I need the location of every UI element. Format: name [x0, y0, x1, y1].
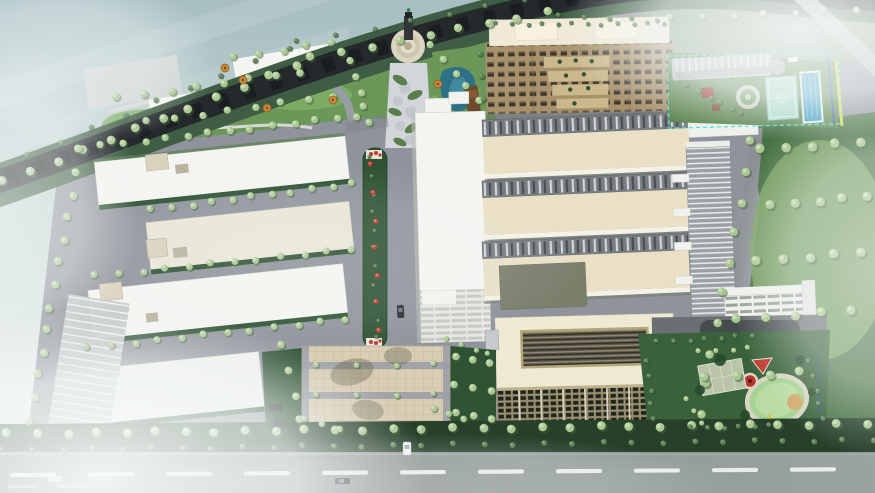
gazebo	[263, 104, 271, 112]
gazebo	[221, 64, 229, 72]
annex-building	[145, 153, 169, 171]
aerial-rendering: Aerial master-plan rendering of an indus…	[0, 0, 875, 493]
factory-hall-1	[482, 111, 691, 182]
scene-canvas: Aerial master-plan rendering of an indus…	[0, 0, 875, 493]
gazebo	[329, 96, 337, 104]
gazebo	[434, 80, 442, 88]
annex-building	[425, 98, 451, 113]
gazebo	[239, 76, 247, 84]
annex-building	[449, 92, 469, 105]
